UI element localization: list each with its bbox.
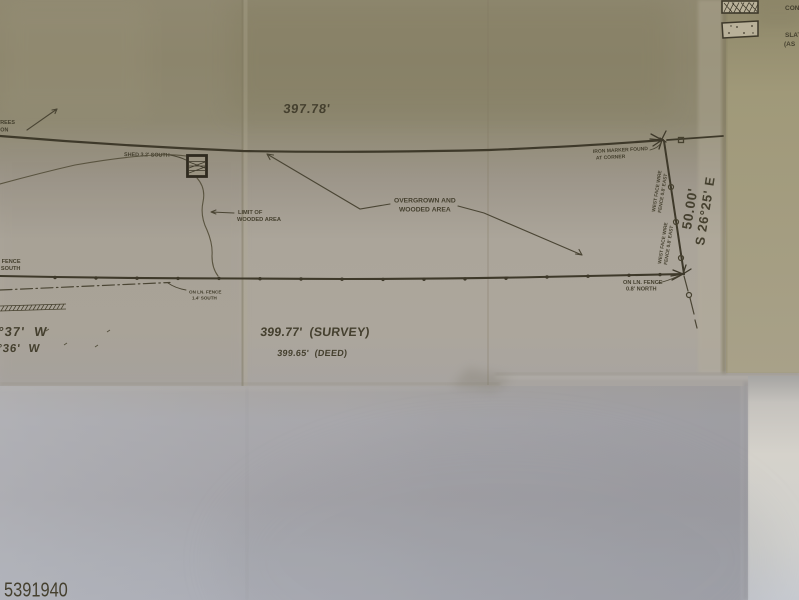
svg-text:0.8' NORTH: 0.8' NORTH <box>626 287 657 293</box>
svg-text:N FENCE: N FENCE <box>0 259 21 265</box>
svg-text:ON LN. FENCE: ON LN. FENCE <box>189 290 221 295</box>
svg-text:1.4' SOUTH: 1.4' SOUTH <box>192 296 218 301</box>
svg-text:°36' W: °36' W <box>0 343 41 355</box>
svg-text:OVERGROWN AND: OVERGROWN AND <box>394 198 456 205</box>
svg-text:SLAT: SLAT <box>785 32 799 39</box>
svg-text:399.77' (SURVEY): 399.77' (SURVEY) <box>260 325 371 339</box>
svg-text:(AS: (AS <box>784 41 796 48</box>
svg-text:ON LN. FENCE: ON LN. FENCE <box>623 280 663 286</box>
svg-text:397.78': 397.78' <box>283 101 332 116</box>
svg-text:SHED 3.2' SOUTH: SHED 3.2' SOUTH <box>124 152 170 159</box>
svg-text:TREES: TREES <box>0 120 15 126</box>
svg-text:ATION: ATION <box>0 128 8 134</box>
svg-text:5391940: 5391940 <box>4 578 68 600</box>
svg-text:' SOUTH: ' SOUTH <box>0 266 20 272</box>
svg-text:CON: CON <box>785 5 799 12</box>
svg-text:WOODED AREA: WOODED AREA <box>237 217 281 223</box>
svg-text:LIMIT OF: LIMIT OF <box>238 210 263 216</box>
svg-text:399.65' (DEED): 399.65' (DEED) <box>277 348 348 358</box>
svg-text:°37' W: °37' W <box>0 324 48 339</box>
svg-text:WOODED AREA: WOODED AREA <box>399 207 451 214</box>
